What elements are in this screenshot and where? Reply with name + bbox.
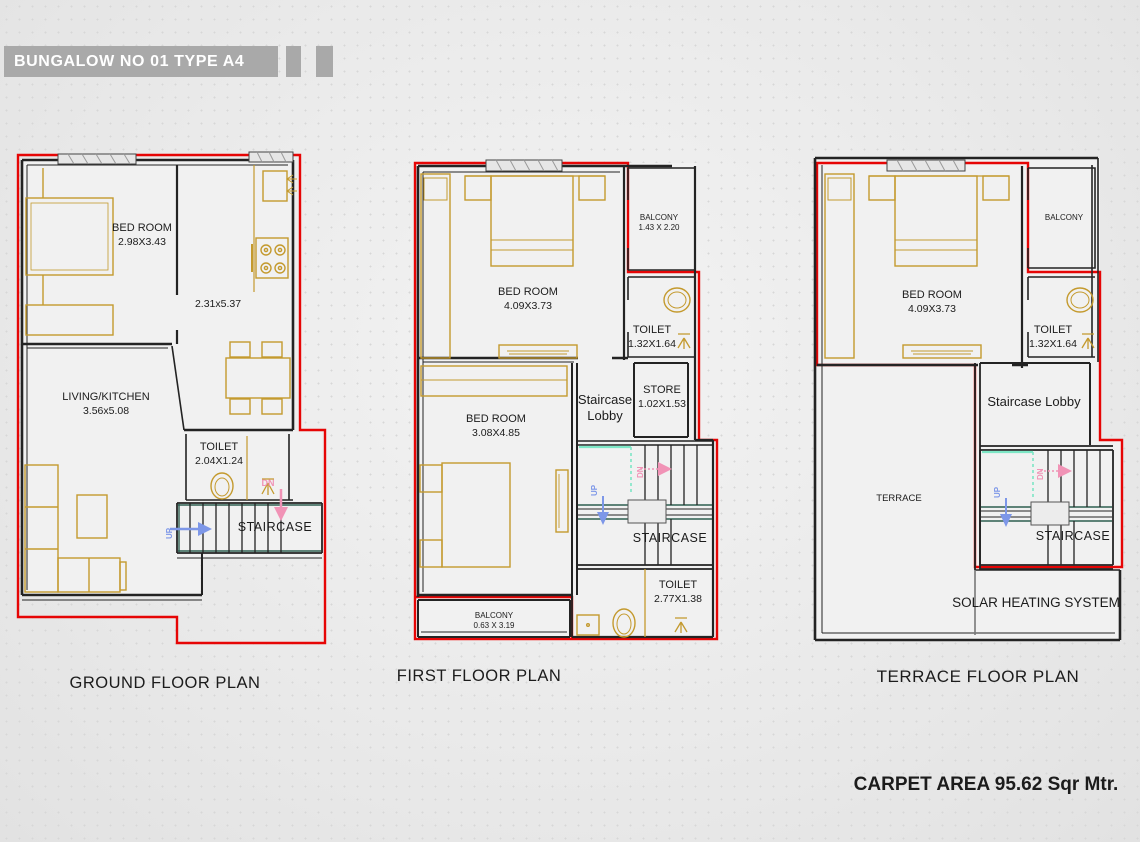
room-label-terrace-balcony: BALCONY (1045, 213, 1083, 223)
floor-plan-drawing: UP DN (0, 0, 1140, 842)
room-label-first-bedroom1: BED ROOM 4.09X3.73 (498, 286, 558, 313)
sheet-title-bar: BUNGALOW NO 01 TYPE A4 (4, 46, 278, 77)
room-label-first-lobby: Staircase Lobby (578, 392, 632, 425)
ground-floor-plan-title: GROUND FLOOR PLAN (70, 674, 261, 693)
carpet-area-note: CARPET AREA 95.62 Sqr Mtr. (854, 774, 1119, 796)
room-label-terrace-staircase: STAIRCASE (1036, 529, 1110, 545)
terrace-up-glyph: UP (993, 486, 1002, 498)
room-label-first-toilet2: TOILET 2.77X1.38 (654, 579, 702, 606)
room-label-terrace-solar: SOLAR HEATING SYSTEM (952, 595, 1120, 612)
room-label-first-bedroom2: BED ROOM 3.08X4.85 (466, 413, 526, 440)
room-label-terrace-open: TERRACE (876, 493, 921, 505)
room-label-ground-kitchen-dim: 2.31x5.37 (195, 298, 241, 311)
title-bar-square-2 (316, 46, 333, 77)
ground-up-glyph: UP (165, 527, 174, 539)
terrace-floor-plan-title: TERRACE FLOOR PLAN (877, 667, 1080, 687)
first-windows (486, 160, 562, 171)
terrace-dn-glyph: DN (1036, 468, 1045, 480)
room-label-terrace-bedroom: BED ROOM 4.09X3.73 (902, 289, 962, 316)
room-label-terrace-lobby: Staircase Lobby (987, 394, 1080, 410)
floor-plan-sheet: UP DN (0, 0, 1140, 842)
room-label-ground-toilet: TOILET 2.04X1.24 (195, 441, 243, 468)
room-label-ground-living: LIVING/KITCHEN 3.56x5.08 (62, 391, 149, 418)
room-label-first-staircase: STAIRCASE (633, 531, 707, 547)
first-up-glyph: UP (590, 484, 599, 496)
room-label-first-balcony1: BALCONY 1.43 X 2.20 (639, 213, 680, 233)
room-label-first-balcony2: BALCONY 0.63 X 3.19 (474, 611, 515, 631)
room-label-first-toilet1: TOILET 1.32X1.64 (628, 324, 676, 351)
room-label-terrace-toilet: TOILET 1.32X1.64 (1029, 324, 1077, 351)
ground-dn-glyph: DN (262, 478, 275, 488)
room-label-ground-bedroom: BED ROOM 2.98X3.43 (112, 222, 172, 249)
room-label-first-store: STORE 1.02X1.53 (638, 384, 686, 411)
sheet-title: BUNGALOW NO 01 TYPE A4 (14, 53, 244, 71)
title-bar-square-1 (286, 46, 301, 77)
terrace-windows (887, 160, 965, 171)
first-dn-glyph: DN (636, 466, 645, 478)
room-label-ground-staircase: STAIRCASE (238, 520, 312, 536)
first-floor-plan-title: FIRST FLOOR PLAN (397, 667, 561, 686)
